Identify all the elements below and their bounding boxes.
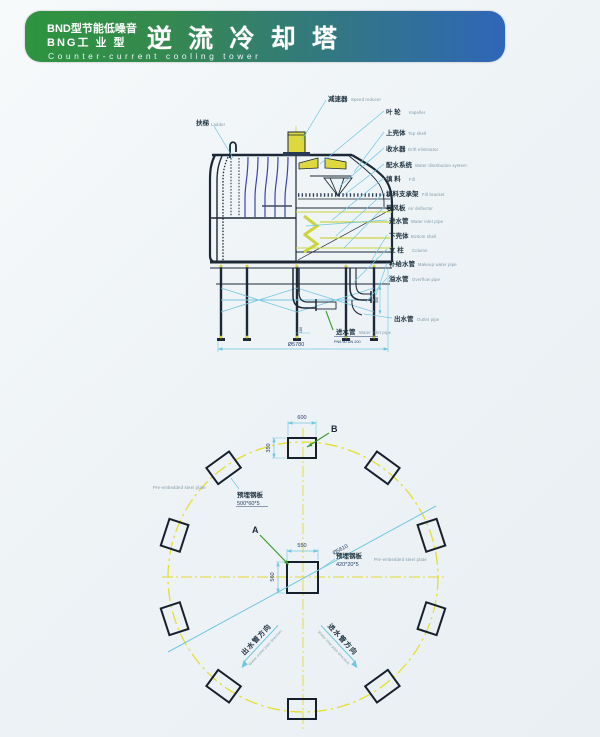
label-overflow-pipe-en: Overflow pipe [412, 277, 441, 282]
inlet-pipe [293, 268, 336, 311]
label-impeller-en: Impeller [409, 110, 426, 115]
plate-bottom [288, 699, 316, 719]
label-speed-reducer-en: Speed reducer [351, 97, 381, 102]
label-top-shell-en: Top shell [408, 131, 426, 136]
label-ladder-en: Ladder [211, 122, 226, 127]
dim-b-width: 600 [297, 415, 306, 421]
center-plate-zh: 预埋钢板 [336, 551, 363, 560]
outer-plate-en: Pre-embedded steel plate [153, 485, 206, 490]
dim-b-height: 350 [266, 443, 272, 452]
dim-outlet-riser: 350 [375, 297, 379, 303]
plan-dim-a: 550 560 [270, 543, 318, 593]
center-plate-size: 420*20*5 [336, 562, 359, 568]
plate-top-right [365, 451, 399, 484]
inlet-dir-zh: 进水管方向 [326, 622, 360, 657]
bottom-inlet-label: 进水管 Water inlet pipe PN6 60 DN 200 [326, 311, 392, 344]
plate-bottom-left [206, 670, 240, 703]
eliminator-row [298, 195, 390, 199]
label-fill-en: Fill [409, 177, 415, 182]
plan-markers: B A [252, 424, 338, 565]
label-inlet-pipe-en: Water inlet pipe [411, 219, 444, 224]
inlet-direction-label: 进水管方向 Water inlet pipe direction [315, 618, 367, 672]
outer-plate-size: 500*60*5 [237, 501, 260, 507]
label-drift-eliminator-zh: 收水器 [386, 144, 406, 153]
outlet-direction-arrow [239, 660, 248, 669]
label-water-distribution-zh: 配水系统 [386, 160, 413, 169]
label-outlet-pipe-zh: 出水管 [394, 314, 414, 323]
outer-plate-zh: 预埋钢板 [237, 490, 264, 499]
plan-view: Ø5610 600 350 550 560 B [153, 415, 445, 731]
label-air-deflector-zh: 导风板 [386, 203, 406, 212]
marker-b: B [331, 424, 338, 434]
label-makeup-pipe-zh: 补给水管 [388, 259, 416, 268]
catalog-page: BND型节能低噪音 BNG工 业 型 逆 流 冷 却 塔 Counter-cur… [0, 0, 600, 737]
plate-left-upper [161, 519, 189, 552]
bottom-inlet-zh: 进水管 [336, 327, 356, 336]
label-inlet-pipe-zh: 进水管 [389, 216, 409, 225]
label-drift-eliminator-en: Drift eliminator [408, 147, 439, 152]
dim-a-height: 560 [270, 572, 276, 581]
impeller [299, 158, 346, 169]
plate-top-B [288, 438, 316, 458]
label-column-en: Column [412, 248, 428, 253]
internal-pipes [245, 157, 288, 217]
technical-drawing: 减速器 Speed reducer 叶 轮 Impeller 上壳体 Top s… [0, 0, 600, 737]
dim-a-width: 550 [297, 543, 306, 549]
label-ladder-zh: 扶梯 [196, 118, 210, 127]
label-speed-reducer-zh: 减速器 [328, 94, 348, 103]
label-makeup-pipe-en: Makeup water pipe [418, 262, 457, 267]
label-air-deflector-en: Air deflector [408, 206, 433, 211]
label-impeller-zh: 叶 轮 [386, 107, 401, 116]
plate-center-A [287, 562, 318, 593]
label-bottom-shell-zh: 下壳体 [389, 231, 409, 240]
green-leader [326, 311, 333, 330]
dim-overall: Ø5780 [288, 342, 305, 348]
label-fill-bracket-en: Fill bracket [422, 192, 445, 197]
fill-chevrons [296, 212, 392, 252]
motor [283, 132, 310, 156]
dim-inlet-offset: 160 [299, 327, 303, 333]
marker-a: A [252, 525, 259, 535]
outlet-direction-label: 出水管方向 Water outlet pipe direction [232, 618, 284, 672]
label-top-shell-zh: 上壳体 [386, 128, 406, 137]
label-fill-zh: 填 料 [386, 174, 401, 183]
label-bottom-shell-en: Bottom shell [411, 234, 436, 239]
label-overflow-pipe-zh: 溢水管 [389, 274, 409, 283]
plan-centerlines [162, 428, 444, 731]
plan-dim-b: 600 350 [266, 415, 316, 458]
label-outlet-pipe-en: Outlet pipe [417, 317, 440, 322]
diameter-line [168, 506, 436, 652]
center-plate-en: Pre-embedded steel plate [374, 557, 427, 562]
label-column-zh: 立 柱 [389, 245, 404, 254]
inlet-direction-arrow [351, 660, 360, 669]
label-water-distribution-en: Water distribution system [415, 163, 467, 168]
outer-plate-label: 预埋钢板 500*60*5 Pre-embedded steel plate [153, 478, 268, 507]
label-fill-bracket-zh: 填料支承架 [386, 189, 419, 198]
bottom-inlet-en: Water inlet pipe [359, 330, 392, 335]
bottom-inlet-spec: PN6 60 DN 200 [334, 340, 361, 344]
outlet-dir-zh: 出水管方向 [239, 622, 273, 657]
tower-section-view: 减速器 Speed reducer 叶 轮 Impeller 上壳体 Top s… [196, 94, 467, 352]
